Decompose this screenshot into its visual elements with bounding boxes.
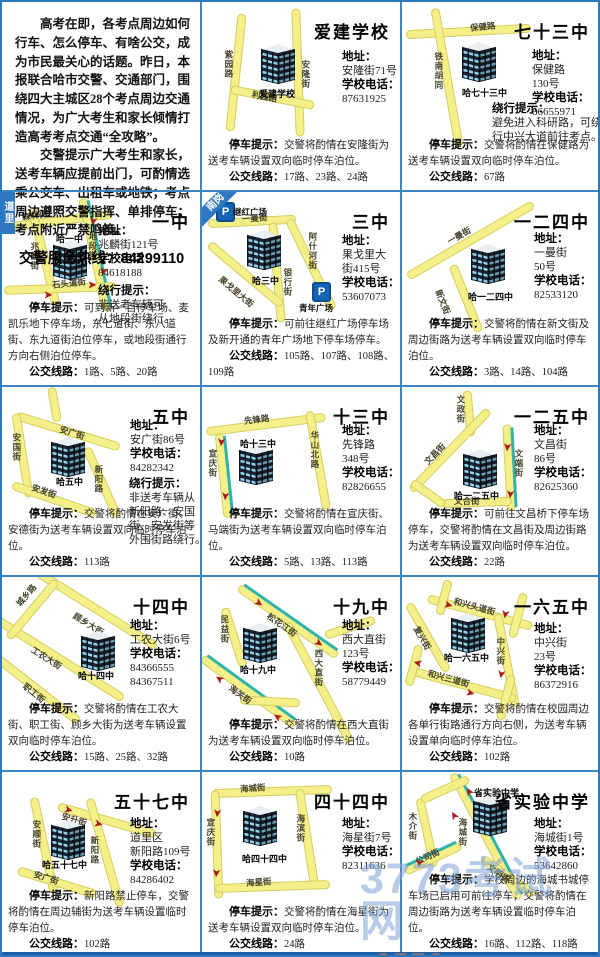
info-value: 一曼街 xyxy=(534,246,592,260)
info-value: 84286402 xyxy=(130,873,191,887)
parking-tip-label: 停车提示： xyxy=(429,139,484,151)
building-face-right xyxy=(479,47,496,82)
info-label: 地址： xyxy=(130,817,191,831)
info-value: 先锋路 xyxy=(342,438,400,452)
info-value: 87631925 xyxy=(342,92,400,106)
parking-tip: 停车提示：交警将酌情在校园周边各单行街路通行方向右侧，为送考车辆设置单向临时停车… xyxy=(408,702,596,750)
parking-tip: 停车提示：可到新一百停车场、麦凯乐地下停车场，东七道街、东八道街、东九道街泊位停… xyxy=(8,301,196,365)
building-face-right xyxy=(68,442,85,477)
info-value: 130号 xyxy=(532,77,590,91)
building-icon xyxy=(468,244,508,286)
bus-routes-label: 公交线路： xyxy=(29,556,84,568)
parking-tip-label: 停车提示： xyxy=(229,318,284,330)
building-face-right xyxy=(98,636,115,671)
info-value: 58779449 xyxy=(342,675,400,689)
parking-tip: 停车提示：学校周边的海城书城停车场已启用可前往停车，交警将酌情在周边街路为送考车… xyxy=(408,873,596,937)
bus-routes-label: 公交线路： xyxy=(229,556,284,568)
tips-block: 停车提示：交警将酌情在西大直街为送考车辆设置双向临时停车泊位。公交线路：10路 xyxy=(208,718,396,766)
bus-routes-text: 102路 xyxy=(484,752,510,763)
info-label: 学校电话： xyxy=(534,466,592,480)
school-info: 地址：一曼街50号学校电话：82533120 xyxy=(534,232,592,302)
parking-tip-label: 停车提示： xyxy=(429,318,484,330)
bus-routes: 公交线路：102路 xyxy=(8,937,196,953)
building-face-left xyxy=(243,628,260,663)
info-label: 地址： xyxy=(534,817,592,831)
school-card: 紫园路安隆街利园路爱建学校爱建学校地址：安隆街71号学校电话：87631925停… xyxy=(202,2,400,190)
tips-block: 停车提示：交警将酌情在宣庆街、马端街为送考车辆设置双向临时停车泊位。公交线路：5… xyxy=(208,507,396,571)
info-value: 街415号 xyxy=(342,262,400,276)
road xyxy=(405,23,530,39)
parking-tip: 停车提示：交警将酌情在新文街及周边街路为送考车辆设置双向临时停车泊位。 xyxy=(408,317,596,365)
parking-lot-label: 青年广场 xyxy=(299,302,333,314)
intro-panel: 高考在即，各考点周边如何行车、怎么停车、有啥公交，成为市民最关心的话题。昨日，本… xyxy=(2,2,200,190)
parking-tip-label: 停车提示： xyxy=(229,508,284,520)
school-info: 地址：工农大街6号学校电话：8436655584367511 xyxy=(130,619,191,689)
school-card: 安升街安顺街新阳路安广街➤➤哈五十七中五十七中地址：道里区新阳路109号学校电话… xyxy=(2,772,200,957)
info-value: 道里区 xyxy=(130,831,191,845)
bus-routes: 公交线路：1路、5路、20路 xyxy=(8,365,196,381)
parking-tip-label: 停车提示： xyxy=(429,874,484,886)
building-icon xyxy=(448,613,488,655)
school-card: 先锋路宣庆街华山北路➤➤哈十三中十三中地址：先锋路348号学校电话：828266… xyxy=(202,387,400,575)
road-label: 安隆街 xyxy=(301,60,310,89)
info-value: 安广街86号 xyxy=(130,433,188,447)
bus-routes-text: 15路、25路、32路 xyxy=(84,752,168,763)
building-label: 哈四十四中 xyxy=(242,852,287,865)
info-label: 学校电话： xyxy=(342,661,400,675)
parking-tip-label: 停车提示： xyxy=(29,890,84,902)
school-card: 保健路铁南胡同哈七十三中七十三中地址：保健路130号学校电话：86655971绕… xyxy=(402,2,600,190)
school-card: 顾乡大街工农大街职工街城乡路哈十四中十四中地址：工农大街6号学校电话：84366… xyxy=(2,577,200,770)
police-hotline: 交警服务热线：84299110 xyxy=(15,247,190,268)
intro-paragraph-1: 高考在即，各考点周边如何行车、怎么停车、有啥公交，成为市民最关心的话题。昨日，本… xyxy=(15,15,190,146)
info-label: 学校电话： xyxy=(342,845,400,859)
info-label: 地址： xyxy=(534,424,592,438)
building-face-right xyxy=(468,618,485,653)
grid-line-vertical xyxy=(400,2,402,957)
school-title: 十四中 xyxy=(133,593,190,618)
building-face-left xyxy=(451,618,468,653)
building-face-right xyxy=(260,811,277,846)
one-way-arrow-icon: ➤ xyxy=(88,281,96,291)
tips-block: 停车提示：交警将酌情在校园周边各单行街路通行方向右侧，为送考车辆设置单向临时停车… xyxy=(408,702,596,766)
school-title: 五十七中 xyxy=(114,788,190,813)
building-face-left xyxy=(261,49,278,84)
building-face-left xyxy=(239,450,256,485)
bus-routes: 公交线路：105路、107路、108路、109路 xyxy=(208,349,396,381)
school-info: 地址：海城街1号学校电话：53642860 xyxy=(534,817,592,873)
road-label: 华山北路 xyxy=(310,431,319,469)
info-value: 348号 xyxy=(342,452,400,466)
school-title: 一六五中 xyxy=(514,593,590,618)
building-icon xyxy=(460,449,500,491)
parking-lot-label: 继红广场 xyxy=(233,206,267,218)
info-value: 安隆街71号 xyxy=(342,64,400,78)
road-label: 民益街 xyxy=(220,615,229,644)
info-value: 84367511 xyxy=(130,675,191,689)
school-title: 省实验中学 xyxy=(495,788,590,813)
parking-tip-label: 停车提示： xyxy=(29,703,84,715)
building-icon xyxy=(459,42,499,84)
road-label: 宣庆街 xyxy=(206,818,215,847)
road-label: 安广街 xyxy=(32,868,60,887)
school-card: 松花江街海关街民益街西大直街➤➤➤➤哈十九中十九中地址：西大直街123号学校电话… xyxy=(202,577,400,770)
one-way-arrow-icon: ➤ xyxy=(413,858,424,868)
parking-tip: 停车提示：交警将酌情在安隆街为送考车辆设置双向临时停车泊位。 xyxy=(208,138,396,170)
grid-line-horizontal xyxy=(2,770,600,772)
bus-routes-label: 公交线路： xyxy=(429,751,484,763)
bus-routes-label: 公交线路： xyxy=(229,938,284,950)
info-value: 82533120 xyxy=(534,288,592,302)
school-title: 一二四中 xyxy=(514,208,590,233)
school-title: 十九中 xyxy=(333,593,390,618)
bottom-border-bar xyxy=(2,952,600,956)
info-value: 新阳路109号 xyxy=(130,845,191,859)
bus-routes-text: 113路 xyxy=(84,557,110,568)
info-value: 西大直街 xyxy=(342,633,400,647)
bus-routes: 公交线路：10路 xyxy=(208,750,396,766)
bus-routes: 公交线路：5路、13路、113路 xyxy=(208,555,396,571)
one-way-arrow-icon: ➤ xyxy=(504,489,515,498)
road-label: 文政街 xyxy=(456,395,465,424)
grid-line-horizontal xyxy=(2,190,600,192)
info-value: 82826655 xyxy=(342,480,400,494)
info-label: 学校电话： xyxy=(342,78,400,92)
road-label: 海滨街 xyxy=(296,814,305,843)
bus-routes-label: 公交线路： xyxy=(229,751,284,763)
info-label: 地址： xyxy=(532,49,590,63)
info-value: 84282342 xyxy=(130,461,188,475)
grid-line-vertical xyxy=(200,2,202,957)
one-way-arrow-icon: ➤ xyxy=(443,600,454,612)
road-label: 银行街 xyxy=(283,268,292,297)
parking-tip-label: 停车提示： xyxy=(229,906,284,918)
building-icon xyxy=(78,631,118,673)
info-value: 中兴街 xyxy=(534,636,592,650)
bus-routes: 公交线路：16路、112路、118路 xyxy=(408,937,596,953)
building-face-left xyxy=(51,825,68,860)
road-label: 海城街 xyxy=(458,818,467,847)
tips-block: 停车提示：交警将酌情在安隆街为送考车辆设置双向临时停车泊位。公交线路：17路、2… xyxy=(208,138,396,186)
detour-label: 绕行提示： xyxy=(129,477,200,491)
bus-routes-label: 公交线路： xyxy=(29,751,84,763)
one-way-arrow-icon: ➤ xyxy=(465,688,476,700)
building-label: 哈一六五中 xyxy=(444,651,489,664)
parking-tip-label: 停车提示： xyxy=(29,302,84,314)
bus-routes: 公交线路：22路 xyxy=(408,555,596,571)
bus-routes-text: 10路 xyxy=(284,752,305,763)
road-label: 海城街 xyxy=(240,781,266,795)
school-info: 地址：中兴街23号学校电话：86372916 xyxy=(534,622,592,692)
bus-routes-text: 17路、23路、24路 xyxy=(284,172,368,183)
building-face-left xyxy=(51,442,68,477)
bus-routes-label: 公交线路： xyxy=(429,938,484,950)
info-value: 23号 xyxy=(534,650,592,664)
road-label: 海星街 xyxy=(246,875,272,889)
info-label: 地址： xyxy=(342,234,400,248)
one-way-arrow-icon: ➤ xyxy=(215,437,226,446)
building-icon xyxy=(48,820,88,862)
info-value: 82625360 xyxy=(534,480,592,494)
info-label: 地址： xyxy=(534,622,592,636)
info-label: 地址： xyxy=(534,232,592,246)
detour-value: 避免进入科研路，可绕 xyxy=(492,116,600,130)
parking-tip-label: 停车提示： xyxy=(229,719,284,731)
road-label: 安国街 xyxy=(12,433,21,462)
one-way-arrow-icon: ➤ xyxy=(210,868,221,877)
info-label: 学校电话： xyxy=(534,274,592,288)
one-way-arrow-icon: ➤ xyxy=(219,491,230,500)
school-info: 地址：果戈里大街415号学校电话：53607073 xyxy=(342,234,400,304)
bus-routes-label: 公交线路： xyxy=(429,556,484,568)
tips-block: 停车提示：学校周边的海城书城停车场已启用可前往停车，交警将酌情在周边街路为送考车… xyxy=(408,873,596,953)
building-label: 哈五十七中 xyxy=(42,858,87,871)
detour-label: 绕行提示： xyxy=(98,284,175,298)
one-way-arrow-icon: ➤ xyxy=(495,669,506,679)
road-label: 新阳路 xyxy=(90,836,99,865)
parking-tip: 停车提示：新阳路禁止停车，交警将酌情在周边辅街为送考车辆设置临时停车泊位。 xyxy=(8,889,196,937)
school-title: 四十四中 xyxy=(314,788,390,813)
tips-block: 停车提示：交警将酌情在保健路为送考车辆设置双向临时停车泊位。公交线路：67路 xyxy=(408,138,596,186)
info-value: 海星街7号 xyxy=(342,831,400,845)
building-icon xyxy=(240,623,280,665)
bus-routes-text: 102路 xyxy=(84,939,110,950)
bus-routes-label: 公交线路： xyxy=(429,171,484,183)
info-label: 学校电话： xyxy=(342,466,400,480)
detour-label: 绕行提示： xyxy=(492,102,600,116)
info-value: 86号 xyxy=(534,452,592,466)
parking-tip-label: 停车提示： xyxy=(229,139,284,151)
building-label: 哈五中 xyxy=(56,475,83,488)
building-face-right xyxy=(68,825,85,860)
info-value: 海城街1号 xyxy=(534,831,592,845)
parking-icon: P xyxy=(312,282,331,302)
road-label: 文端街 xyxy=(514,449,523,478)
one-way-arrow-icon: ➤ xyxy=(44,291,52,301)
bus-routes-text: 3路、14路、104路 xyxy=(484,367,568,378)
school-title: 七十三中 xyxy=(514,18,590,43)
hotline-label: 交警服务热线： xyxy=(19,251,121,267)
parking-tip: 停车提示：可前往文昌桥下停车场停车，交警将酌情在文昌街及周边街路为送考车辆设置双… xyxy=(408,507,596,555)
building-face-right xyxy=(488,249,505,284)
parking-tip-label: 停车提示： xyxy=(429,703,484,715)
road-label: 木介街 xyxy=(408,812,417,841)
road xyxy=(47,387,62,422)
bus-routes: 公交线路：24路 xyxy=(208,937,396,953)
bus-routes: 公交线路：113路 xyxy=(8,555,196,571)
info-label: 学校电话： xyxy=(534,664,592,678)
parking-tip: 停车提示：交警将酌情在海星街为送考车辆设置双向临时停车泊位。 xyxy=(208,905,396,937)
building-face-left xyxy=(462,47,479,82)
school-title: 三中 xyxy=(352,208,390,233)
bus-routes-text: 16路、112路、118路 xyxy=(484,939,578,950)
bus-routes-text: 24路 xyxy=(284,939,305,950)
road-label: 新文街 xyxy=(432,288,453,316)
school-card: 海城街宣庆街海滨街海星街➤➤哈四十四中四十四中地址：海星街7号学校电话：8231… xyxy=(202,772,400,957)
building-icon xyxy=(244,230,284,272)
info-value: 文昌街 xyxy=(534,438,592,452)
bus-routes-text: 67路 xyxy=(484,172,505,183)
building-label: 哈三中 xyxy=(252,274,279,287)
bus-routes: 公交线路：67路 xyxy=(408,170,596,186)
parking-tip: 停车提示：交警将酌情在工农大街、职工街、顾乡大街为送考车辆设置双向临时停车泊位。 xyxy=(8,702,196,750)
bus-routes: 公交线路：3路、14路、104路 xyxy=(408,365,596,381)
bus-routes-text: 22路 xyxy=(484,557,505,568)
parking-tip: 停车提示：交警将酌情在宣庆街、马端街为送考车辆设置双向临时停车泊位。 xyxy=(208,507,396,555)
building-label: 哈十三中 xyxy=(240,437,276,450)
one-way-arrow-icon: ➤ xyxy=(413,656,424,668)
bus-routes-label: 公交线路： xyxy=(229,171,284,183)
tips-block: 停车提示：可前往文昌桥下停车场停车，交警将酌情在文昌街及周边街路为送考车辆设置双… xyxy=(408,507,596,571)
info-value: 工农大街6号 xyxy=(130,633,191,647)
info-value: 50号 xyxy=(534,260,592,274)
building-icon xyxy=(240,806,280,848)
school-card: 安广街安国街安发街新阳路哈五中五中地址：安广街86号学校电话：84282342绕… xyxy=(2,387,200,575)
school-info: 地址：西大直街123号学校电话：58779449 xyxy=(342,619,400,689)
road-label: 阿什河街 xyxy=(308,232,317,270)
info-value: 53642860 xyxy=(534,859,592,873)
road-label: 紫园路 xyxy=(224,50,233,79)
bus-routes-label: 公交线路： xyxy=(229,350,284,362)
info-label: 学校电话： xyxy=(534,845,592,859)
building-face-right xyxy=(264,235,281,270)
intro-paragraph-2: 交警提示广大考生和家长，送考车辆应提前出门，可酌情选乘公交车、出租车或地铁；考点… xyxy=(15,146,190,240)
road-label: 宣庆街 xyxy=(208,449,217,478)
bus-routes-label: 公交线路： xyxy=(429,366,484,378)
road xyxy=(409,478,447,508)
parking-tip: 停车提示：交警将酌情在保健路为送考车辆设置双向临时停车泊位。 xyxy=(408,138,596,170)
building-face-right xyxy=(480,454,497,489)
info-label: 地址： xyxy=(342,424,400,438)
bus-routes: 公交线路：102路 xyxy=(408,750,596,766)
tips-block: 停车提示：交警将酌情在安广街、安德街为送考车辆设置双向临时停车泊位。公交线路：1… xyxy=(8,507,196,571)
school-card: 一曼街新文街哈一二四中一二四中地址：一曼街50号学校电话：82533120停车提… xyxy=(402,192,600,385)
hotline-number: 84299110 xyxy=(121,251,185,267)
tips-block: 停车提示：可到新一百停车场、麦凯乐地下停车场，东七道街、东八道街、东九道街泊位停… xyxy=(8,301,196,381)
building-face-right xyxy=(256,450,273,485)
building-icon xyxy=(236,445,276,487)
info-value: 123号 xyxy=(342,647,400,661)
one-way-lane-accent xyxy=(222,435,233,514)
info-label: 学校电话： xyxy=(130,647,191,661)
info-label: 地址： xyxy=(130,419,188,433)
one-way-arrow-icon: ➤ xyxy=(499,609,510,619)
school-info: 地址：安隆街71号学校电话：87631925 xyxy=(342,50,400,106)
info-value: 84366555 xyxy=(130,661,191,675)
school-info: 地址：海星街7号学校电话：82311636 xyxy=(342,817,400,873)
school-card: 一曼街阿什河街银行街果戈里大街P继红广场P青年广场哈三中三中地址：果戈里大街41… xyxy=(202,192,400,385)
info-value: 果戈里大 xyxy=(342,248,400,262)
building-face-left xyxy=(81,636,98,671)
newspaper-page: 高考在即，各考点周边如何行车、怎么停车、有啥公交，成为市民最关心的话题。昨日，本… xyxy=(0,0,600,957)
parking-tip-label: 停车提示： xyxy=(29,508,84,520)
building-label: 爱建学校 xyxy=(259,87,295,100)
info-value: 84618188 xyxy=(98,266,159,280)
info-label: 学校电话： xyxy=(130,859,191,873)
school-card: 文政街文昌街文端街文合街➤➤哈一二五中一二五中地址：文昌街86号学校电话：826… xyxy=(402,387,600,575)
info-label: 地址： xyxy=(342,817,400,831)
building-icon xyxy=(258,44,298,86)
building-label: 哈一二五中 xyxy=(454,489,499,502)
info-label: 学校电话： xyxy=(130,447,188,461)
road-label: 铁南胡同 xyxy=(434,52,443,90)
road-label: 新阳路 xyxy=(94,465,103,494)
school-title: 爱建学校 xyxy=(314,18,390,43)
building-face-left xyxy=(243,811,260,846)
bus-routes: 公交线路：15路、25路、32路 xyxy=(8,750,196,766)
parking-tip: 停车提示：交警将酌情在安广街、安德街为送考车辆设置双向临时停车泊位。 xyxy=(8,507,196,555)
road-label: 安顺街 xyxy=(32,820,41,849)
grid-line-horizontal xyxy=(2,385,600,387)
building-label: 哈一二四中 xyxy=(468,290,513,303)
bus-routes-text: 1路、5路、20路 xyxy=(84,367,158,378)
tips-block: 停车提示：交警将酌情在工农大街、职工街、顾乡大街为送考车辆设置双向临时停车泊位。… xyxy=(8,702,196,766)
info-value: 保健路 xyxy=(532,63,590,77)
school-info: 地址：安广街86号学校电话：84282342 xyxy=(130,419,188,475)
building-icon xyxy=(48,437,88,479)
school-info: 地址：道里区新阳路109号学校电话：84286402 xyxy=(130,817,191,887)
bus-routes-label: 公交线路： xyxy=(29,366,84,378)
school-info: 地址：文昌街86号学校电话：82625360 xyxy=(534,424,592,494)
info-value: 86372916 xyxy=(534,678,592,692)
building-face-left xyxy=(247,235,264,270)
building-label: 哈十九中 xyxy=(240,663,276,676)
building-label: 哈七十三中 xyxy=(462,86,507,99)
school-card: 和兴头道街复兴街中兴街和兴三道街➤➤➤➤➤哈一六五中一六五中地址：中兴街23号学… xyxy=(402,577,600,770)
info-label: 地址： xyxy=(342,50,400,64)
parking-tip: 停车提示：交警将酌情在西大直街为送考车辆设置双向临时停车泊位。 xyxy=(208,718,396,750)
building-face-right xyxy=(278,49,295,84)
info-label: 地址： xyxy=(342,619,400,633)
one-way-arrow-icon: ➤ xyxy=(501,442,512,451)
school-card: 海城街木介街公司街文明街➤➤➤省实验中学省实验中学地址：海城街1号学校电话：53… xyxy=(402,772,600,957)
parking-tip-label: 停车提示： xyxy=(429,508,484,520)
tips-block: 停车提示：新阳路禁止停车，交警将酌情在周边辅街为送考车辆设置临时停车泊位。公交线… xyxy=(8,889,196,953)
one-way-arrow-icon: ➤ xyxy=(211,808,222,817)
info-value: 53607073 xyxy=(342,290,400,304)
road-label: 中兴街 xyxy=(496,637,505,666)
road-label: 西大直街 xyxy=(314,649,323,687)
detour-value: 非送考车辆从 xyxy=(129,491,200,505)
district-tab: 道里 xyxy=(2,192,15,234)
building-face-left xyxy=(471,249,488,284)
info-value: 82311636 xyxy=(342,859,400,873)
tips-block: 停车提示：交警将酌情在新文街及周边街路为送考车辆设置双向临时停车泊位。公交线路：… xyxy=(408,317,596,381)
tips-block: 停车提示：可前往继红广场停车场及新开通的青年广场地下停车场停车。公交线路：105… xyxy=(208,317,396,381)
building-face-left xyxy=(473,801,490,836)
parking-tip: 停车提示：可前往继红广场停车场及新开通的青年广场地下停车场停车。 xyxy=(208,317,396,349)
info-label: 学校电话： xyxy=(342,276,400,290)
tips-block: 停车提示：交警将酌情在海星街为送考车辆设置双向临时停车泊位。公交线路：24路 xyxy=(208,905,396,953)
grid-line-horizontal xyxy=(2,575,600,577)
building-label: 哈十四中 xyxy=(78,669,114,682)
bus-routes-label: 公交线路： xyxy=(29,938,84,950)
info-label: 地址： xyxy=(130,619,191,633)
building-face-left xyxy=(463,454,480,489)
bus-routes-text: 5路、13路、113路 xyxy=(284,557,368,568)
bus-routes: 公交线路：17路、23路、24路 xyxy=(208,170,396,186)
building-face-right xyxy=(260,628,277,663)
school-info: 地址：先锋路348号学校电话：82826655 xyxy=(342,424,400,494)
